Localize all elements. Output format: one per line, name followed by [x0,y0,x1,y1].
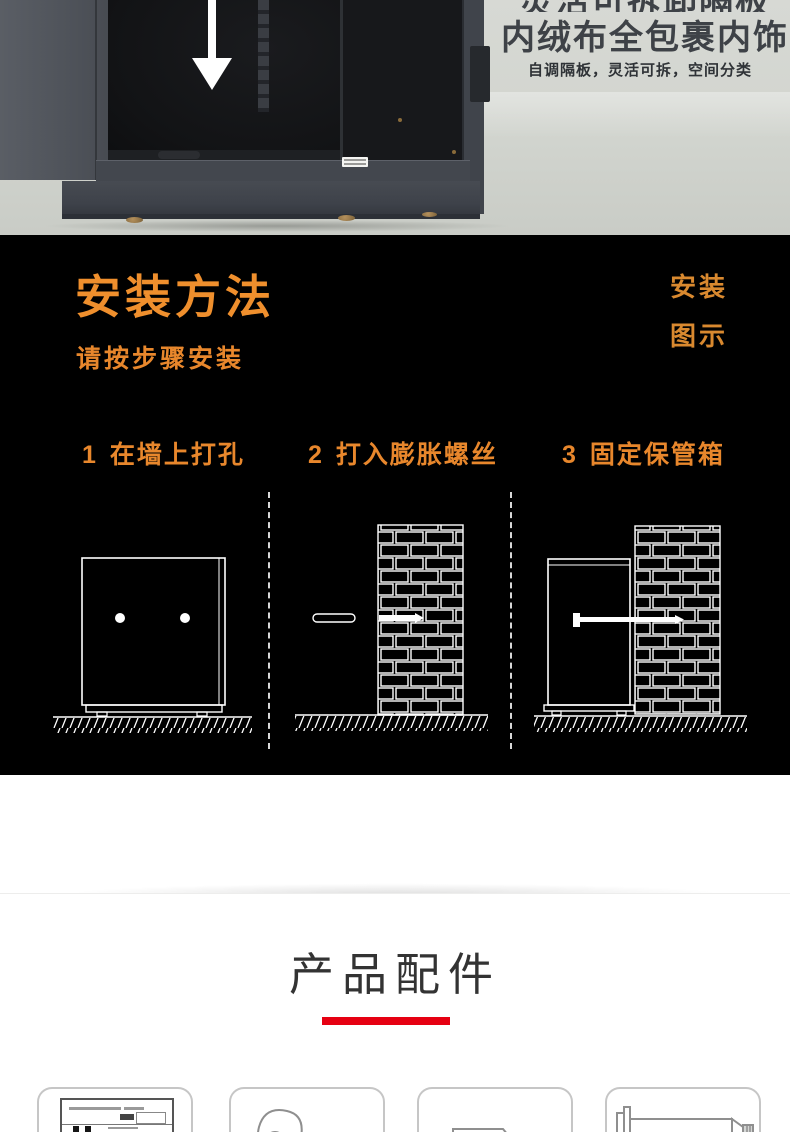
step-2-number: 2 [308,441,324,469]
install-side-label-top: 安装 [670,263,730,312]
down-arrow-icon [188,0,236,96]
user-manual-icon: 使用手册 [60,1098,174,1132]
step-1-number: 1 [82,441,98,469]
safe-foot-icon [338,215,355,221]
hero-subline: 自调隔板，灵活可拆，空间分类 [528,59,752,80]
panel-sheen [480,92,790,138]
door-lock-block [470,46,490,102]
section-divider-shadow [0,880,790,894]
accessories-title: 产品配件 [0,938,790,1003]
step-1-text: 在墙上打孔 [110,441,245,469]
door-screw-icon [452,150,456,154]
step-2-label: 2打入膨胀螺丝 [308,435,498,471]
install-side-label: 安装 图示 [670,263,730,361]
shelf-rail [258,0,269,112]
safe-fixed-to-brick-wall-icon [532,518,767,743]
accessory-card-bracket [417,1087,573,1132]
key-icon [231,1089,379,1132]
product-detail-page: 灵活可拆卸隔板 内绒布全包裹内饰 自调隔板，灵活可拆，空间分类 安装方法 请按步… [0,0,790,1132]
step-3-number: 3 [562,441,578,469]
title-underline [322,1017,450,1025]
interior-brand-label [158,151,200,159]
dashed-separator [510,492,512,749]
safe-interior-felt [108,0,370,161]
safe-foot-icon [422,212,437,217]
safe-with-drill-holes-icon [45,548,260,748]
safe-base-lip [62,214,480,219]
expansion-bolt-into-brick-wall-icon [290,518,495,743]
safe-base [62,181,480,218]
open-door-felt [340,0,467,170]
expansion-bolt-icon [607,1089,755,1132]
step-3-label: 3固定保管箱 [562,435,725,471]
door-screw-icon [398,118,402,122]
step-3-text: 固定保管箱 [590,441,725,469]
install-section: 安装方法 请按步骤安装 安装 图示 1在墙上打孔 2打入膨胀螺丝 3固定保管箱 [0,235,790,775]
safe-foot-icon [126,217,143,223]
accessory-card-bolt [605,1087,761,1132]
cabinet-sill [96,160,470,182]
base-brand-label [342,157,368,167]
hero-photo-section: 灵活可拆卸隔板 内绒布全包裹内饰 自调隔板，灵活可拆，空间分类 [0,0,790,235]
cabinet-frame-edge [95,0,97,180]
hero-headline-line2: 内绒布全包裹内饰 [500,10,790,59]
floor-shadow [42,220,512,232]
corner-bracket-icon [419,1089,567,1132]
step-2-text: 打入膨胀螺丝 [336,441,498,469]
install-title: 安装方法 [75,261,275,327]
install-subtitle: 请按步骤安装 [76,339,244,375]
accessory-card-key [229,1087,385,1132]
section-divider-line [0,893,790,894]
dashed-separator [268,492,270,749]
install-side-label-bottom: 图示 [670,312,730,361]
accessory-card-manual: 使用手册 [37,1087,193,1132]
step-1-label: 1在墙上打孔 [82,435,245,471]
